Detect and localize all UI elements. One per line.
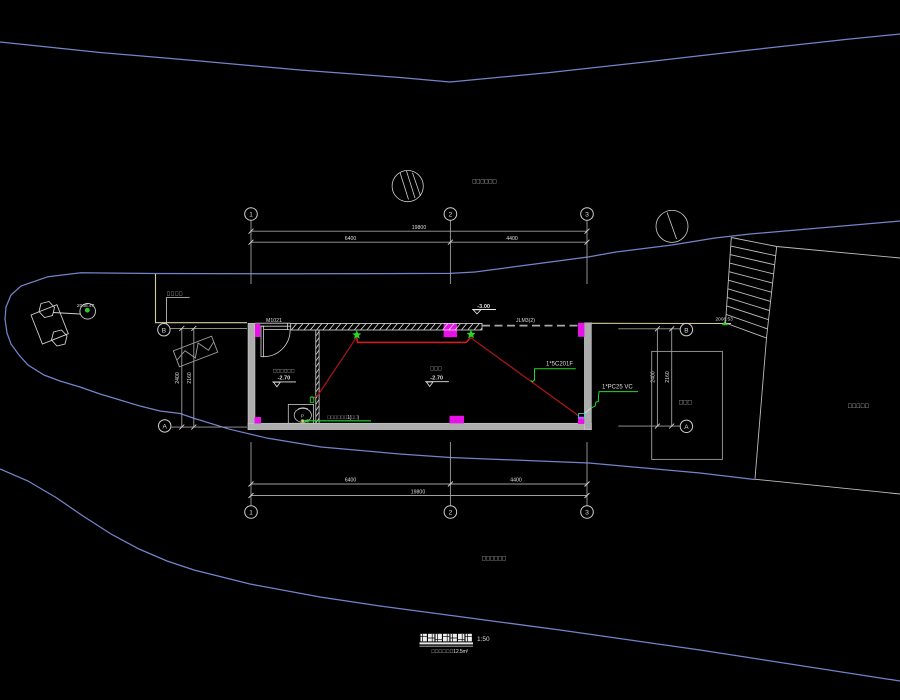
svg-text:1: 1: [249, 510, 253, 517]
svg-text:-2.70: -2.70: [278, 376, 291, 382]
svg-text:: : [848, 403, 869, 410]
svg-text:6400: 6400: [345, 236, 357, 242]
svg-text:3: 3: [585, 212, 589, 219]
svg-text:4400: 4400: [510, 478, 522, 484]
svg-text:A: A: [163, 424, 168, 431]
svg-text:B: B: [684, 327, 688, 334]
svg-text:1*PC25 VC: 1*PC25 VC: [602, 384, 633, 390]
svg-text:19800: 19800: [412, 225, 427, 231]
svg-text:: : [472, 179, 496, 186]
svg-text:2160: 2160: [187, 372, 193, 384]
svg-text:: : [430, 367, 442, 373]
svg-text:: : [679, 399, 693, 406]
svg-text:: : [482, 556, 506, 563]
svg-text:1:50: 1:50: [477, 636, 490, 643]
svg-text:B: B: [162, 327, 166, 334]
svg-text:-2.70: -2.70: [430, 376, 443, 382]
svg-text:P: P: [301, 414, 304, 419]
svg-text:-3.00: -3.00: [477, 304, 490, 310]
svg-text:2: 2: [449, 510, 453, 517]
svg-text:A: A: [684, 424, 689, 431]
svg-text:6400: 6400: [345, 478, 357, 484]
svg-text:19800: 19800: [411, 490, 426, 496]
svg-text:1(): 1(): [327, 415, 359, 421]
svg-text:1*5C201F: 1*5C201F: [546, 361, 573, 367]
svg-text:JLM3(2): JLM3(2): [516, 318, 535, 324]
svg-text:2160: 2160: [665, 371, 671, 383]
svg-text:12.5m²: 12.5m²: [431, 649, 469, 655]
svg-text:4400: 4400: [506, 236, 518, 242]
svg-text:M1021: M1021: [266, 318, 282, 324]
svg-text:3: 3: [585, 510, 589, 517]
svg-text:1: 1: [249, 212, 253, 219]
svg-text:2400: 2400: [175, 372, 181, 384]
svg-text:2008.47: 2008.47: [77, 303, 95, 309]
svg-text:: : [273, 369, 295, 375]
svg-text:: : [167, 292, 183, 298]
svg-text:2: 2: [449, 212, 453, 219]
